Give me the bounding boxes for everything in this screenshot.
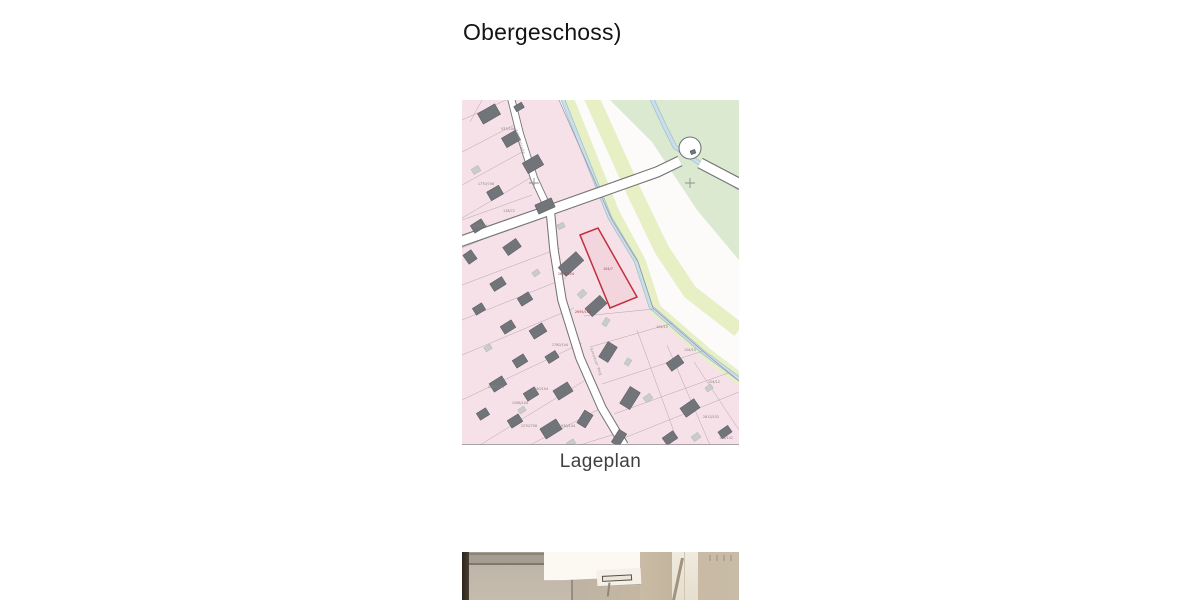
parcel-number-label: 1340/104 (532, 387, 548, 391)
parcel-number-label: 104/12 (708, 380, 720, 384)
parcel-number-label: 104/13 (684, 348, 696, 352)
photo-door-seam (684, 552, 685, 600)
interior-photo (462, 552, 739, 600)
parcel-number-label: 104/7 (603, 267, 613, 271)
parcel-number-label: 2695/104 (575, 310, 591, 314)
photo-table-leg (607, 582, 611, 596)
parcel-number-label: 2694/104 (558, 272, 574, 276)
site-plan-map: AmselstraßeGronauer Weg 537/1041770/7081… (462, 100, 739, 445)
parcel-number-label: 128/152 (719, 436, 733, 440)
photo-beige-wall (640, 552, 672, 600)
turning-circle-surface (680, 138, 700, 158)
site-plan-figure: AmselstraßeGronauer Weg 537/1041770/7081… (462, 100, 739, 473)
map-caption: Lageplan (462, 451, 739, 473)
parcel-number-label: 104/15 (656, 325, 668, 329)
parcel-number-label: 1262/104 (488, 385, 504, 389)
section-heading: Obergeschoss) (463, 19, 622, 46)
photo-table-rail (602, 574, 632, 581)
parcel-number-label: 1270/708 (521, 424, 537, 428)
cadastral-map: AmselstraßeGronauer Weg 537/1041770/7081… (462, 100, 739, 445)
photo-folding-table (597, 568, 642, 587)
parcel-number-label: 1780/104 (552, 343, 568, 347)
parcel-number-label: 1930/104 (559, 424, 575, 428)
parcel-number-label: 537/104 (501, 127, 515, 131)
photo-frame-marks (709, 555, 735, 561)
photo-dark-edge (462, 552, 469, 600)
parcel-number-label: 1770/708 (478, 182, 494, 186)
parcel-number-label: 1178/104 (471, 224, 487, 228)
parcel-number-label: 128/72 (503, 209, 515, 213)
parcel-number-label: 2813/152 (703, 415, 719, 419)
document-page: Obergeschoss) (0, 0, 1200, 600)
parcel-number-label: 1268/104 (512, 401, 528, 405)
